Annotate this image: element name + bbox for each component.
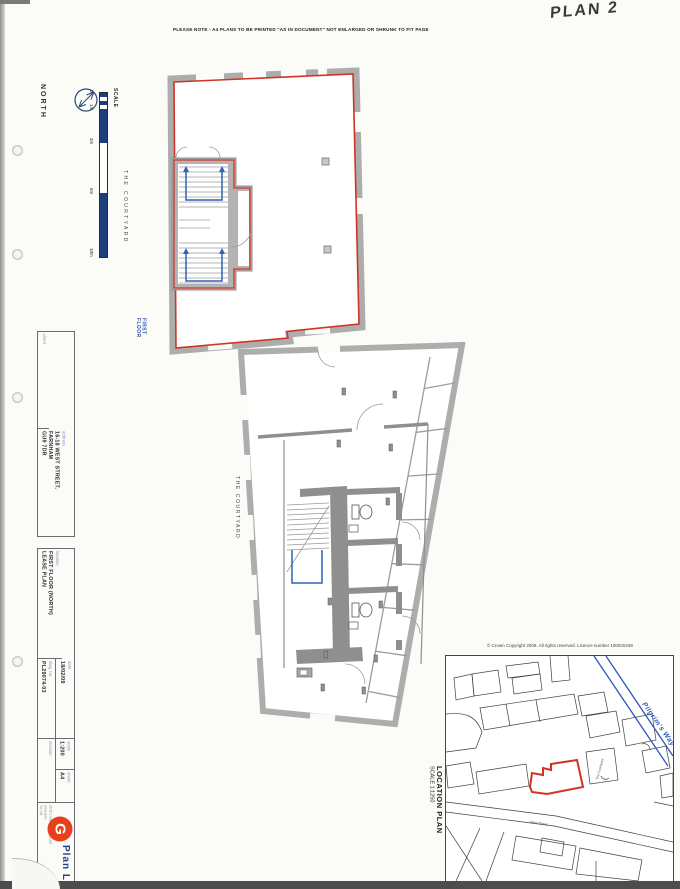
dwg-no-label: dwg. no. <box>48 661 53 736</box>
courtyard-label-lower: THE COURTYARD <box>233 476 239 539</box>
scan-edge-bottom <box>0 881 680 889</box>
column <box>322 158 329 165</box>
client-label: client <box>42 334 47 426</box>
date-cell: date 18/02/09 <box>56 659 74 738</box>
map-buildings <box>446 656 673 881</box>
location-plan-box: Pilgrim's Way The Courtyard West Street <box>445 655 674 882</box>
street-label: West Street <box>530 820 548 826</box>
north-arrow-icon <box>72 86 100 114</box>
scale-value: 1:200 <box>58 741 64 767</box>
courtyard-map-label: The Courtyard <box>595 758 605 780</box>
dwg-no-cell: dwg. no. PL29074-03 <box>38 659 56 738</box>
scale-sheet-stack: scale 1:200 sheet A4 <box>56 739 74 802</box>
hole-punch <box>12 392 23 403</box>
print-note: PLEASE NOTE - A4 PLANS TO BE PRINTED "AS… <box>173 27 429 32</box>
scale-tick: 0 <box>89 90 94 93</box>
column <box>324 246 331 253</box>
hole-punch <box>12 249 23 260</box>
road-label: Pilgrim's Way <box>640 701 673 748</box>
date-dwg-row: dwg. no. PL29074-03 date 18/02/09 <box>38 659 74 739</box>
scale-cell: scale 1:200 <box>56 739 74 770</box>
north-label: NORTH <box>38 84 46 119</box>
scale-bar-segment <box>100 193 107 257</box>
location-label: location <box>55 551 60 656</box>
dwg-no-value: PL29074-03 <box>39 661 45 736</box>
revision-label: revision <box>48 741 53 800</box>
scan-edge-top <box>0 0 30 4</box>
scale-bar-title: SCALE <box>111 88 117 107</box>
location-cell: location FIRST FLOOR (NORTH) LEASE PLAN <box>38 549 62 659</box>
revision-cell: revision <box>38 739 56 802</box>
logo-tel-line: Tel | 08 <box>38 805 43 844</box>
client-cell: client <box>38 332 49 429</box>
subject-property-outline <box>530 760 583 794</box>
scale-bar-segment <box>100 93 107 109</box>
courtyard-label-upper: THE COURTYARD <box>121 170 127 244</box>
scale-bar-segment <box>100 109 107 143</box>
address-label: address <box>61 431 66 535</box>
location-plan-title: LOCATION PLAN <box>434 766 443 834</box>
scale-label: scale <box>66 741 71 767</box>
first-floor-plan <box>171 71 362 351</box>
location-plan-map: Pilgrim's Way The Courtyard West Street <box>446 656 673 881</box>
address-value: 16-18 WEST STREET, FARNHAM GU9 7DR <box>40 431 59 535</box>
date-label: date <box>67 661 72 736</box>
title-block-client-address: client address 16-18 WEST STREET, FARNHA… <box>37 331 75 537</box>
date-value: 18/02/09 <box>58 661 64 736</box>
lower-floor-plan <box>241 345 462 724</box>
address-cell: address 16-18 WEST STREET, FARNHAM GU9 7… <box>38 429 69 537</box>
first-floor-label: FIRST FLOOR <box>134 318 146 338</box>
location-plan-title-block: LOCATION PLAN SCALE 1:1250 <box>428 766 443 834</box>
scale-tick: 6m <box>89 188 94 194</box>
scale-tick: 3m <box>89 138 94 144</box>
scan-edge-left <box>0 0 5 889</box>
scale-bar <box>99 92 108 258</box>
location-value: FIRST FLOOR (NORTH) LEASE PLAN <box>40 551 53 656</box>
scale-bar-segment <box>100 143 107 193</box>
hole-punch <box>12 656 23 667</box>
scale-tick: 1m <box>89 104 94 110</box>
sheet-value: A4 <box>58 772 64 799</box>
scale-tick: 10m <box>89 248 94 257</box>
scale-sheet-row: revision scale 1:200 sheet A4 <box>38 739 74 803</box>
svg-text:G: G <box>52 823 69 835</box>
sheet-cell: sheet A4 <box>56 770 74 801</box>
sheet-label: sheet <box>66 772 71 799</box>
title-block-main: location FIRST FLOOR (NORTH) LEASE PLAN … <box>37 548 75 889</box>
scanned-lease-plan-page: PLAN 2 PLEASE NOTE - A4 PLANS TO BE PRIN… <box>0 0 680 889</box>
company-logo-icon: G <box>47 816 73 842</box>
company-brand-text: Plan L <box>60 845 71 881</box>
hole-punch <box>12 145 23 156</box>
copyright-note: © Crown Copyright 2008. All rights reser… <box>487 643 633 648</box>
